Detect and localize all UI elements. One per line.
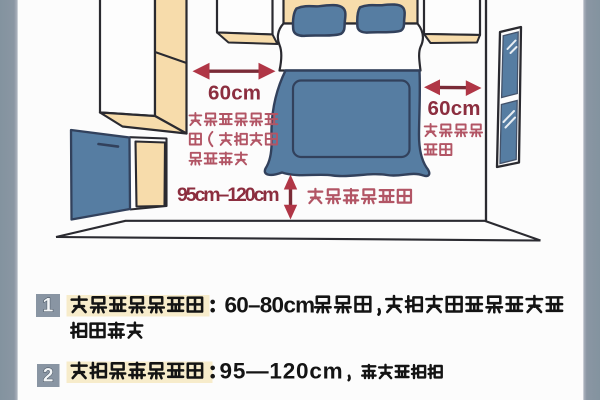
- svg-text:2: 2: [43, 366, 54, 387]
- svg-text:95—120cm: 95—120cm: [220, 359, 344, 384]
- svg-text:1: 1: [43, 296, 54, 317]
- svg-text:60cm: 60cm: [208, 82, 261, 105]
- svg-text:60–80cm: 60–80cm: [225, 293, 315, 318]
- svg-text:95cm–120cm: 95cm–120cm: [177, 184, 279, 206]
- svg-text:60cm: 60cm: [428, 97, 481, 120]
